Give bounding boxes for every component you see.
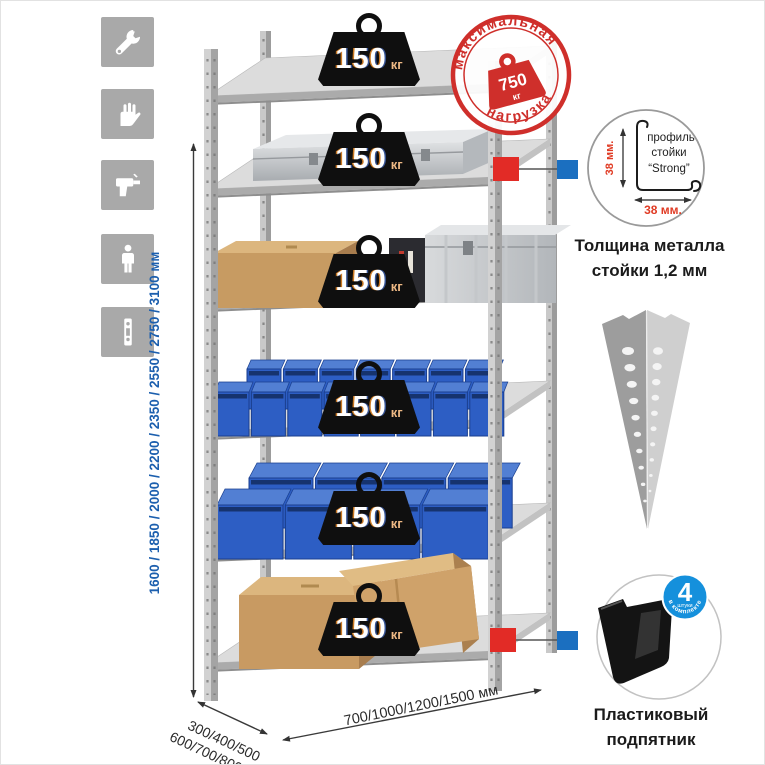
foot-detail-circle: 4 штуки в комплекте — [597, 575, 721, 700]
profile-label-1: профиль — [647, 132, 695, 144]
weight-body: 150кг — [317, 254, 421, 308]
shelf-load-unit: кг — [391, 279, 403, 294]
shelf-load-badge: 150кг — [317, 361, 421, 434]
weight-body: 150кг — [317, 132, 421, 186]
foot-callout — [490, 628, 578, 652]
foot-caption-line-1: Пластиковый — [561, 703, 741, 728]
profile-caption: Толщина металла стойки 1,2 мм — [557, 234, 742, 283]
callout-blue-square — [557, 160, 578, 179]
profile-caption-line-1: Толщина металла — [557, 234, 742, 259]
profile-detail-circle: 38 мм. 38 мм. профиль стойки “Strong” — [588, 110, 704, 226]
height-dimensions-label: 1600 / 1850 / 2000 / 2200 / 2350 / 2550 … — [143, 143, 167, 703]
shelf-load-badge: 150кг — [317, 113, 421, 186]
callout-blue-square — [557, 631, 578, 650]
profile-label-2: стойки — [651, 147, 686, 159]
callout-red-square — [490, 628, 516, 652]
foot-caption: Пластиковый подпятник — [561, 703, 741, 752]
max-load-stamp: максимальная нагрузка 750 кг — [439, 1, 582, 146]
profile-callout — [493, 157, 578, 181]
weight-body: 150кг — [317, 491, 421, 545]
shelf-load-badge: 150кг — [317, 472, 421, 545]
foot-caption-line-2: подпятник — [561, 728, 741, 753]
shelf-load-value: 150 — [335, 613, 386, 646]
shelf-load-unit: кг — [391, 405, 403, 420]
shelf-load-value: 150 — [335, 502, 386, 535]
weight-body: 150кг — [317, 602, 421, 656]
quantity-badge: 4 штуки в комплекте — [663, 575, 708, 620]
shelf-load-unit: кг — [391, 516, 403, 531]
shelf-load-unit: кг — [391, 157, 403, 172]
callout-red-square — [493, 157, 519, 181]
profile-vertical-dim: 38 мм. — [604, 141, 616, 176]
weight-body: 150кг — [317, 380, 421, 434]
corner-post-image — [602, 310, 690, 529]
shelf-load-unit: кг — [391, 627, 403, 642]
shelf-load-badge: 150кг — [317, 583, 421, 656]
gloves-icon — [101, 89, 154, 139]
shelf-load-value: 150 — [335, 391, 386, 424]
profile-horizontal-dim: 38 мм. — [644, 203, 682, 217]
product-infographic: максимальная нагрузка 750 кг 38 мм. — [0, 0, 765, 765]
profile-caption-line-2: стойки 1,2 мм — [557, 259, 742, 284]
shelf-load-badge: 150кг — [317, 13, 421, 86]
weight-body: 150кг — [317, 32, 421, 86]
profile-label-3: “Strong” — [648, 163, 690, 175]
wrench-icon — [101, 17, 154, 67]
shelf-load-unit: кг — [391, 57, 403, 72]
shelf-load-value: 150 — [335, 143, 386, 176]
shelf-load-badge: 150кг — [317, 235, 421, 308]
shelf-load-value: 150 — [335, 265, 386, 298]
shelf-load-value: 150 — [335, 43, 386, 76]
